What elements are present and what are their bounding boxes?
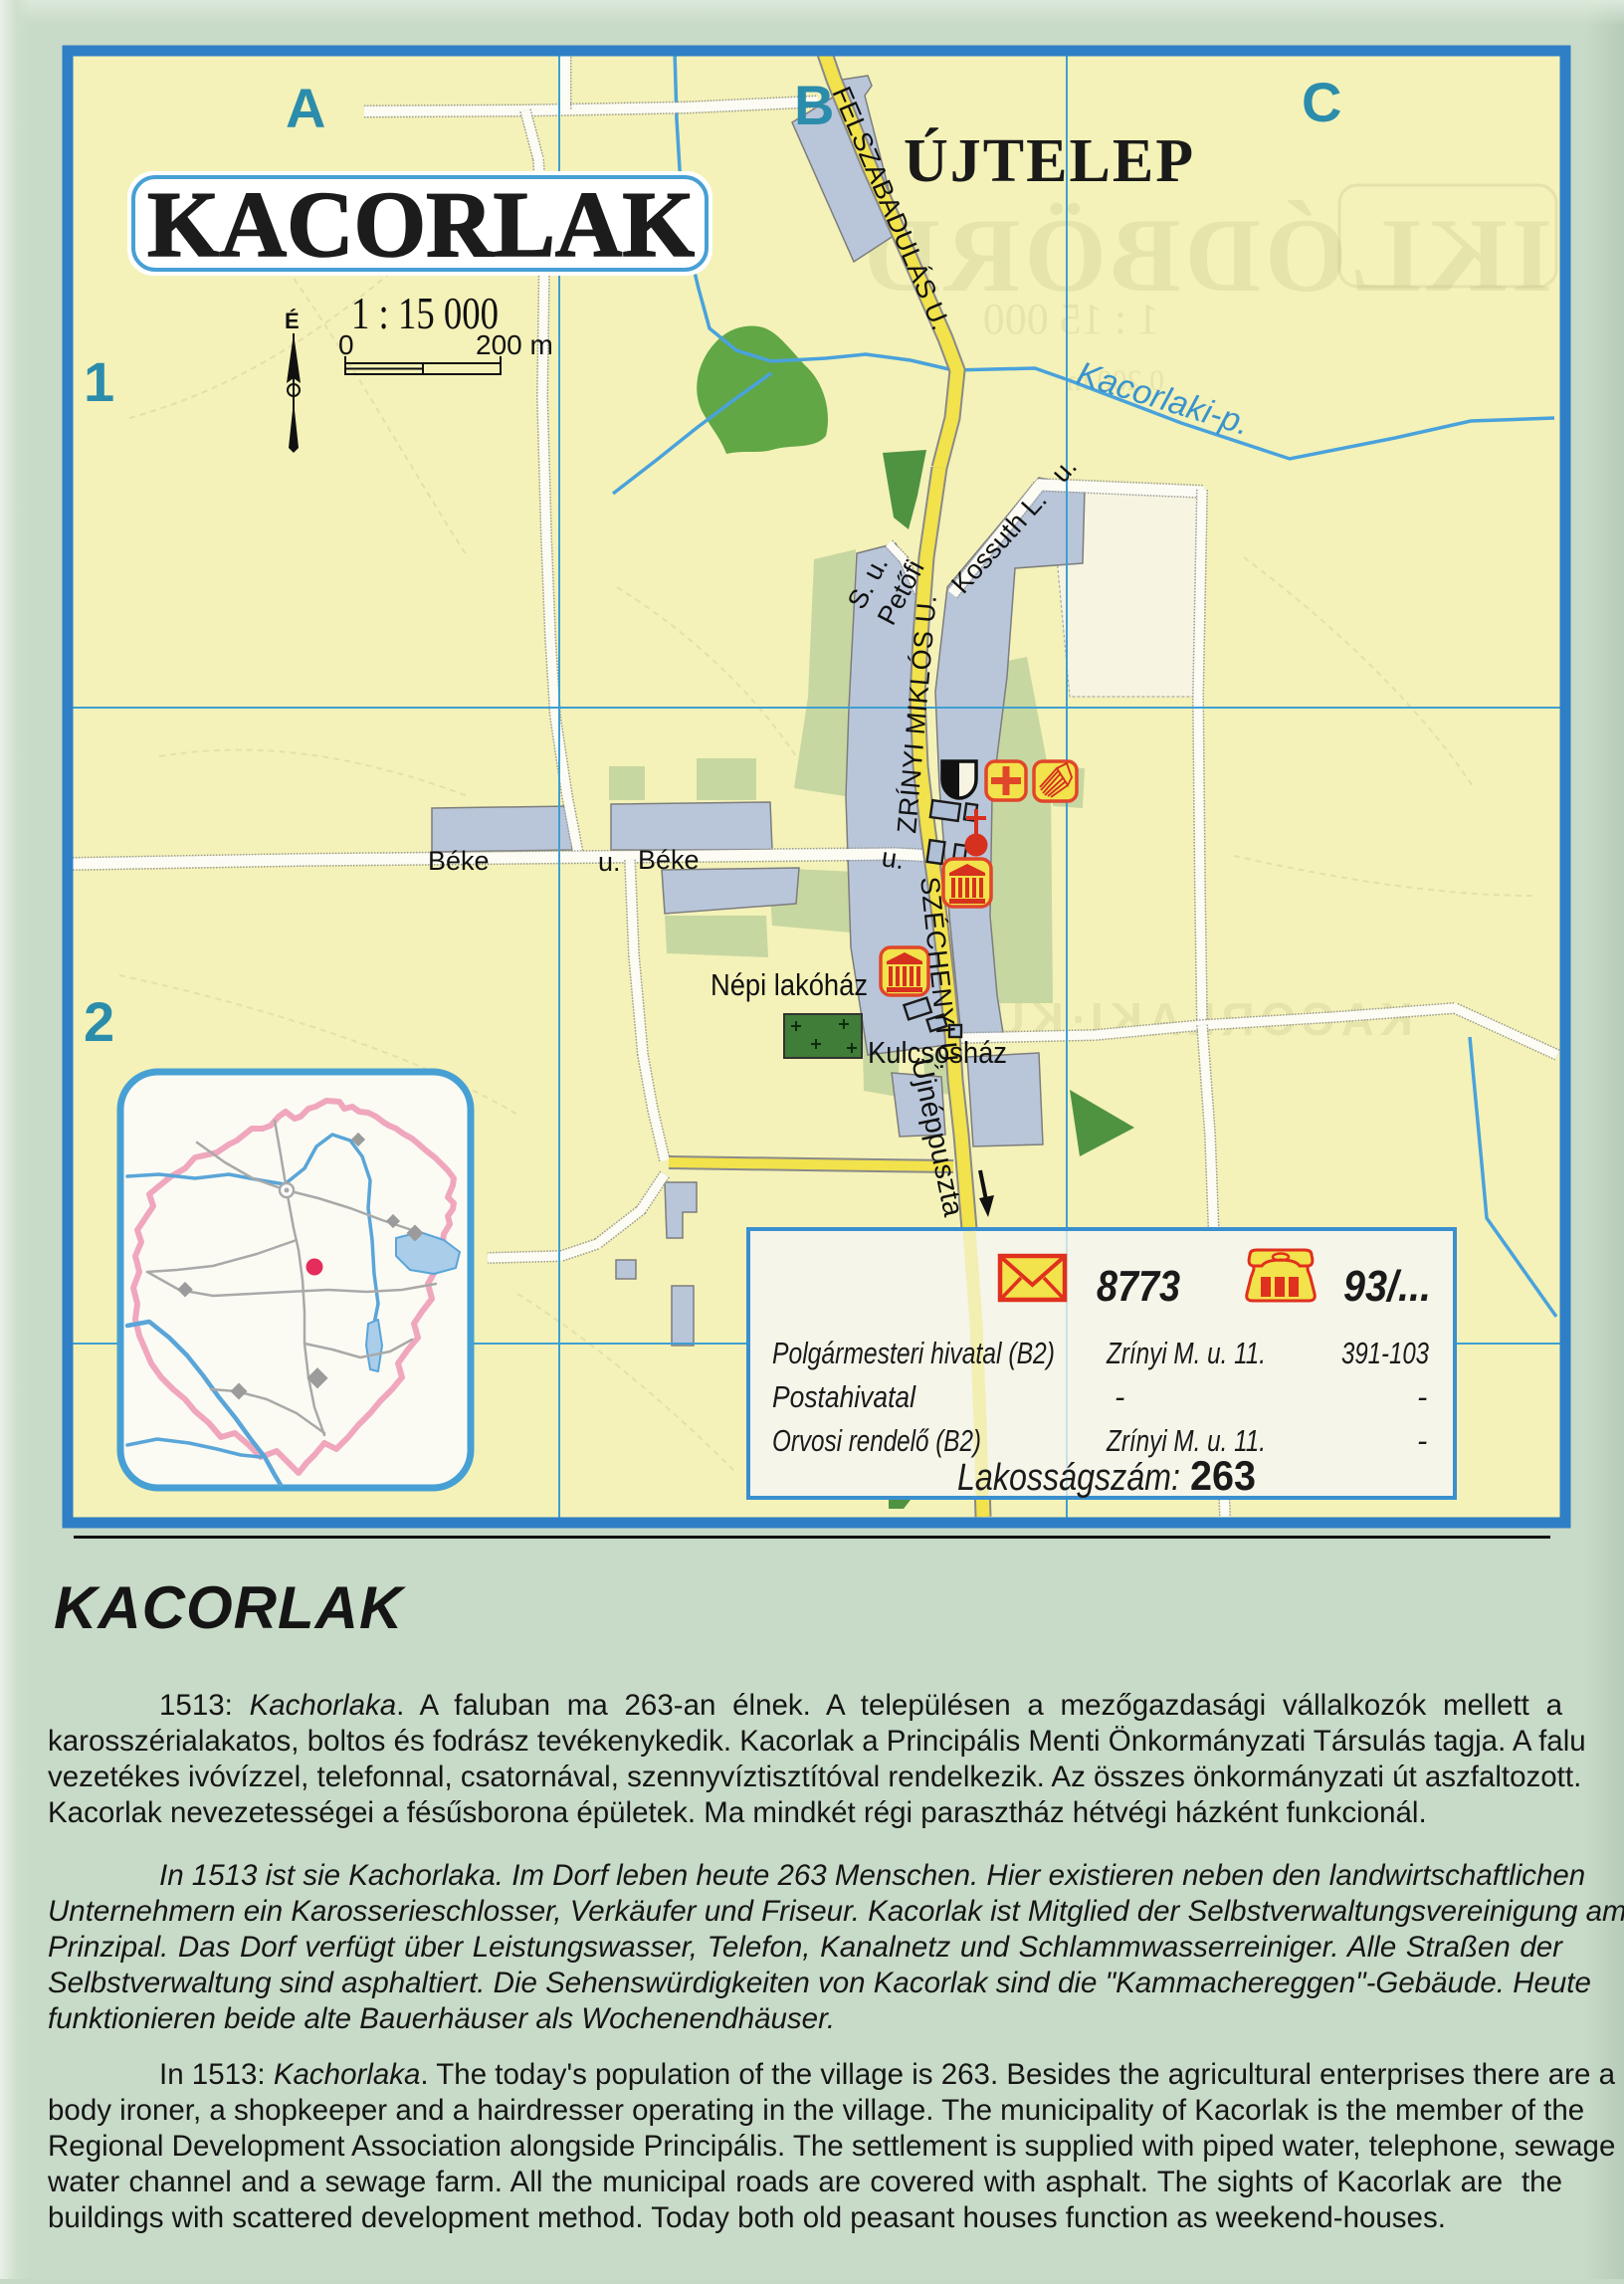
svg-text:Polgármesteri hivatal (B2): Polgármesteri hivatal (B2) — [772, 1336, 1055, 1370]
svg-text:Lakosságszám:: Lakosságszám: — [957, 1457, 1180, 1499]
svg-text:Béke: Béke — [638, 845, 700, 875]
svg-text:1: 1 — [84, 350, 114, 413]
svg-text:ÚJTELEP: ÚJTELEP — [904, 127, 1195, 195]
svg-text:Zrínyi M. u. 11.: Zrínyi M. u. 11. — [1106, 1336, 1266, 1370]
svg-text:A: A — [286, 77, 325, 139]
svg-text:Kulcsosház: Kulcsosház — [868, 1035, 1007, 1070]
svg-text:263: 263 — [1190, 1452, 1256, 1499]
svg-text:u.: u. — [598, 847, 621, 877]
svg-text:u.: u. — [880, 842, 906, 875]
svg-text:IKLÓDBÖRD: IKLÓDBÖRD — [860, 197, 1552, 313]
svg-text:2: 2 — [84, 990, 114, 1053]
svg-text:Postahivatal: Postahivatal — [772, 1379, 916, 1414]
svg-text:0: 0 — [338, 329, 354, 360]
svg-text:C: C — [1302, 71, 1341, 133]
svg-text:93/...: 93/... — [1343, 1262, 1431, 1311]
svg-text:391-103: 391-103 — [1341, 1336, 1429, 1370]
svg-text:B: B — [794, 74, 834, 136]
svg-text:1 : 15 000: 1 : 15 000 — [983, 295, 1159, 343]
svg-text:-: - — [1115, 1379, 1124, 1414]
svg-text:8773: 8773 — [1097, 1262, 1180, 1311]
svg-text:Orvosi rendelő (B2): Orvosi rendelő (B2) — [772, 1423, 981, 1458]
svg-text:-: - — [1417, 1379, 1427, 1414]
svg-text:Béke: Béke — [428, 846, 490, 876]
svg-text:Népi lakóház: Népi lakóház — [710, 967, 868, 1002]
svg-text:É: É — [285, 309, 300, 333]
svg-text:KACORLAK: KACORLAK — [147, 173, 695, 277]
svg-text:-: - — [1417, 1423, 1427, 1458]
svg-text:200 m: 200 m — [476, 329, 553, 360]
